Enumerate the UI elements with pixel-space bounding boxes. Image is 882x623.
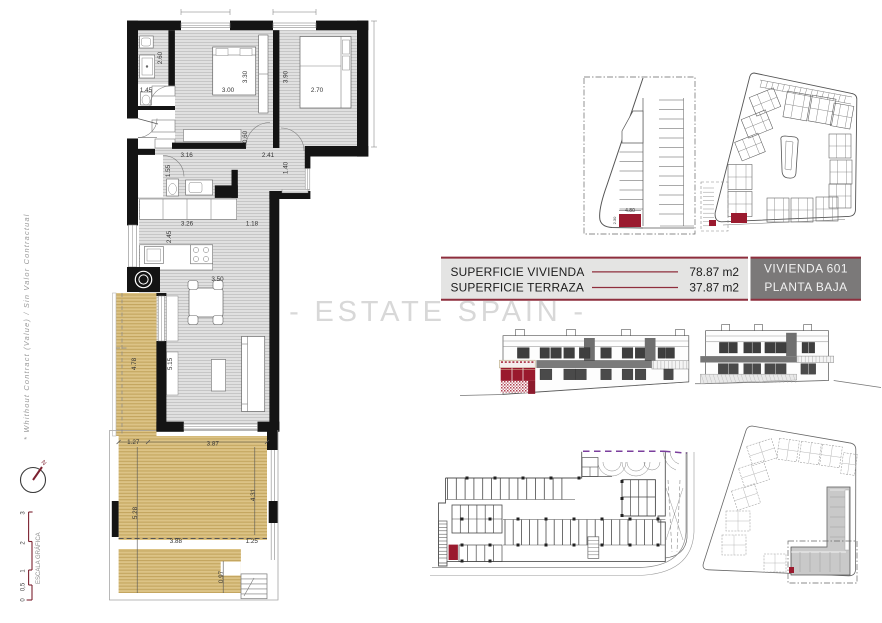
svg-text:ESCALA GRÁFICA: ESCALA GRÁFICA (35, 532, 42, 584)
svg-text:1.40: 1.40 (282, 161, 289, 174)
svg-text:3.50: 3.50 (211, 276, 224, 283)
svg-text:0.60: 0.60 (242, 130, 249, 143)
svg-text:5.28: 5.28 (132, 506, 139, 519)
svg-text:0.97: 0.97 (218, 570, 225, 583)
svg-text:3.90: 3.90 (283, 70, 290, 83)
svg-text:SUPERFICIE VIVIENDA: SUPERFICIE VIVIENDA (451, 265, 585, 279)
svg-text:3.88: 3.88 (170, 538, 183, 545)
svg-text:* Whithout Contract (Value) /: * Whithout Contract (Value) / Sin Valor … (22, 213, 31, 440)
svg-text:2.70: 2.70 (311, 87, 324, 94)
svg-text:2.60: 2.60 (157, 51, 164, 64)
svg-text:3.26: 3.26 (181, 221, 194, 228)
svg-text:VIVIENDA 601: VIVIENDA 601 (764, 262, 848, 276)
svg-text:2.30: 2.30 (612, 216, 617, 225)
svg-text:4.80: 4.80 (625, 208, 635, 214)
svg-text:2.41: 2.41 (262, 152, 275, 159)
svg-text:1.27: 1.27 (127, 439, 140, 446)
svg-text:PLANTA BAJA: PLANTA BAJA (764, 280, 847, 294)
svg-text:4.31: 4.31 (250, 488, 257, 501)
svg-text:3.16: 3.16 (180, 152, 193, 159)
svg-text:78.87 m2: 78.87 m2 (689, 265, 739, 279)
svg-text:3.87: 3.87 (207, 441, 220, 448)
svg-text:37.87 m2: 37.87 m2 (689, 281, 739, 295)
svg-text:5.15: 5.15 (167, 357, 174, 370)
svg-text:SUPERFICIE TERRAZA: SUPERFICIE TERRAZA (451, 281, 585, 295)
svg-text:1.18: 1.18 (246, 221, 259, 228)
svg-text:3.00: 3.00 (222, 87, 235, 94)
svg-text:4.78: 4.78 (131, 357, 138, 370)
svg-text:1.45: 1.45 (140, 87, 153, 94)
svg-text:1.25: 1.25 (246, 538, 259, 545)
svg-text:1.55: 1.55 (165, 164, 172, 177)
svg-text:2.45: 2.45 (166, 230, 173, 243)
svg-text:0,5: 0,5 (21, 582, 27, 591)
svg-text:3.30: 3.30 (242, 70, 249, 83)
